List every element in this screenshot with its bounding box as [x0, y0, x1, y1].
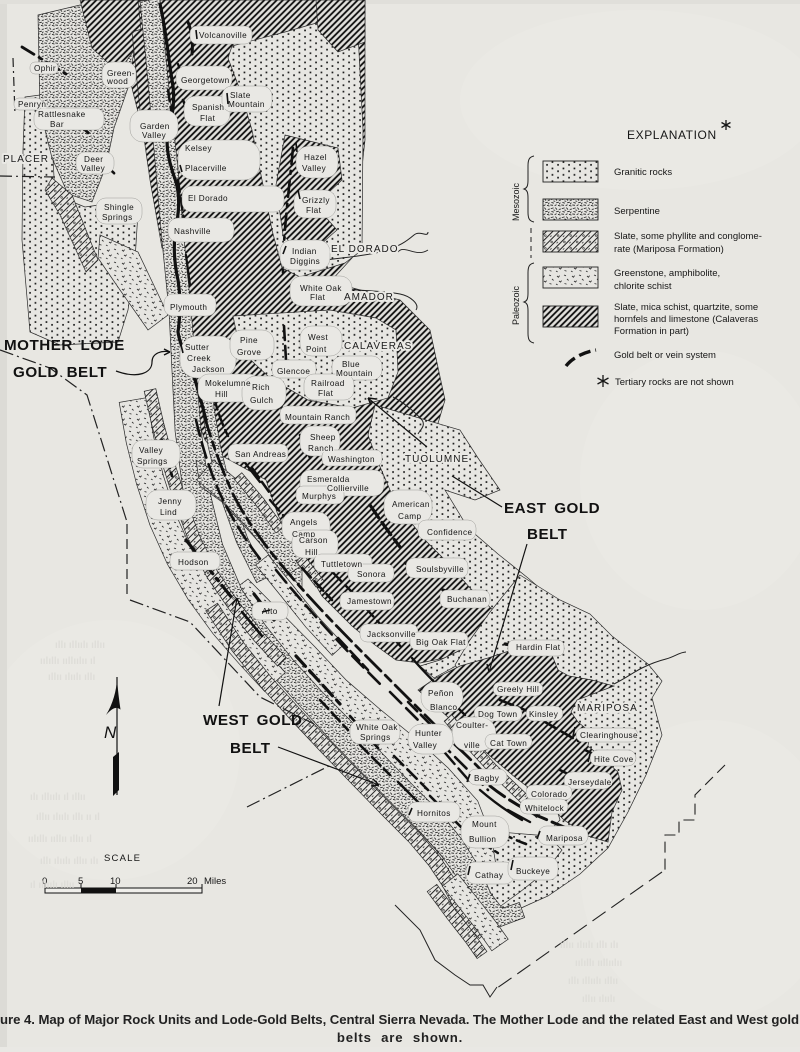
- svg-text:Hite Cove: Hite Cove: [594, 755, 634, 764]
- svg-text:Mesozoic: Mesozoic: [511, 182, 521, 221]
- svg-text:Gold belt or vein system: Gold belt or vein system: [614, 350, 716, 361]
- svg-text:20: 20: [187, 876, 198, 887]
- svg-text:Penryn: Penryn: [18, 100, 46, 109]
- svg-text:Buckeye: Buckeye: [516, 867, 550, 876]
- svg-text:Mountain: Mountain: [228, 100, 265, 109]
- svg-text:ıllı ıllıılı ıllıı: ıllı ıllıılı ıllıı: [568, 976, 618, 987]
- svg-text:Valley: Valley: [81, 164, 106, 173]
- svg-text:Slate, mica schist, quartzite,: Slate, mica schist, quartzite, some: [614, 302, 758, 313]
- svg-text:Lind: Lind: [160, 508, 177, 517]
- svg-text:Jacksonville: Jacksonville: [367, 630, 416, 639]
- svg-text:Hill: Hill: [215, 390, 228, 399]
- svg-text:Confidence: Confidence: [427, 528, 472, 537]
- svg-text:Serpentine: Serpentine: [614, 206, 660, 217]
- svg-text:Jenny: Jenny: [158, 497, 182, 506]
- svg-text:Spanish: Spanish: [192, 103, 224, 112]
- svg-text:Flat: Flat: [310, 293, 326, 302]
- svg-text:MARIPOSA: MARIPOSA: [577, 703, 638, 714]
- svg-text:Dog Town: Dog Town: [478, 710, 518, 719]
- svg-text:Slate, some phyllite and congl: Slate, some phyllite and conglome-: [614, 231, 762, 242]
- svg-text:WEST GOLD: WEST GOLD: [203, 712, 302, 729]
- svg-text:Sheep: Sheep: [310, 433, 336, 442]
- svg-text:Valley: Valley: [302, 164, 327, 173]
- svg-text:Plymouth: Plymouth: [170, 303, 207, 312]
- svg-text:Volcanoville: Volcanoville: [199, 31, 247, 40]
- svg-text:Nashville: Nashville: [174, 227, 211, 236]
- svg-text:Paleozoic: Paleozoic: [511, 285, 521, 325]
- svg-text:belts are shown.: belts are shown.: [337, 1030, 463, 1045]
- svg-text:Point: Point: [306, 345, 327, 354]
- svg-text:SCALE: SCALE: [104, 853, 141, 864]
- svg-text:Bullion: Bullion: [469, 835, 496, 844]
- svg-text:ılı ıllıılı ıl ıllıı: ılı ıllıılı ıl ıllıı: [30, 792, 86, 803]
- svg-text:ıllı ılıılı ıllıı ılı: ıllı ılıılı ıllıı ılı: [40, 856, 99, 867]
- svg-text:Kelsey: Kelsey: [185, 144, 212, 153]
- svg-text:chlorite schist: chlorite schist: [614, 281, 672, 292]
- svg-text:Mountain Ranch: Mountain Ranch: [285, 413, 350, 422]
- svg-text:Placerville: Placerville: [185, 164, 227, 173]
- svg-text:Tertiary rocks are not sho: Tertiary rocks are not shown: [615, 377, 734, 388]
- svg-text:PLACER: PLACER: [3, 154, 49, 165]
- svg-text:ıılıllı ııllıılıı ıl: ıılıllı ııllıılıı ıl: [40, 656, 96, 667]
- svg-text:Bagby: Bagby: [474, 774, 500, 783]
- svg-text:Miles: Miles: [204, 876, 226, 887]
- svg-text:Blue: Blue: [342, 360, 360, 369]
- svg-text:ıl ıllıılı ıllıı: ıl ıllıılı ıllıı: [30, 880, 75, 891]
- svg-text:White Oak: White Oak: [300, 284, 342, 293]
- svg-text:Murphys: Murphys: [302, 492, 336, 501]
- svg-text:Washington: Washington: [328, 455, 375, 464]
- svg-text:Cathay: Cathay: [475, 871, 504, 880]
- svg-text:Ranch: Ranch: [308, 444, 334, 453]
- svg-text:BELT: BELT: [230, 740, 271, 757]
- svg-text:hornfels and limestone (Calave: hornfels and limestone (Calaveras: [614, 314, 758, 325]
- svg-text:Valley: Valley: [139, 446, 164, 455]
- svg-text:Deer: Deer: [84, 155, 103, 164]
- svg-text:Cat Town: Cat Town: [490, 739, 527, 748]
- svg-text:Greely Hill: Greely Hill: [497, 685, 539, 694]
- svg-text:Grizzly: Grizzly: [302, 196, 330, 205]
- svg-text:Mountain: Mountain: [336, 369, 373, 378]
- svg-text:Diggins: Diggins: [290, 257, 320, 266]
- svg-text:Bar: Bar: [50, 120, 64, 129]
- svg-text:Railroad: Railroad: [311, 379, 345, 388]
- svg-text:Camp: Camp: [398, 512, 421, 521]
- svg-text:rate (Mariposa Formation): rate (Mariposa Formation): [614, 244, 724, 255]
- svg-text:Clearinghouse: Clearinghouse: [580, 731, 638, 740]
- svg-text:Valley: Valley: [142, 131, 167, 140]
- svg-text:Slate: Slate: [230, 91, 251, 100]
- svg-text:Flat: Flat: [318, 389, 334, 398]
- svg-text:5: 5: [78, 876, 83, 887]
- svg-text:Creek: Creek: [187, 354, 211, 363]
- svg-text:Esmeralda: Esmeralda: [307, 475, 350, 484]
- svg-text:Mount: Mount: [472, 820, 497, 829]
- svg-text:Jackson: Jackson: [192, 365, 225, 374]
- svg-text:AMADOR: AMADOR: [344, 292, 394, 303]
- svg-text:Formation in part): Formation in part): [614, 326, 689, 337]
- svg-text:10: 10: [110, 876, 121, 887]
- svg-text:Tuttletown: Tuttletown: [321, 560, 363, 569]
- svg-text:El Dorado: El Dorado: [188, 194, 228, 203]
- svg-text:Greenstone, amphibolite,: Greenstone, amphibolite,: [614, 268, 720, 279]
- svg-text:ıllıı ılıılı ıllı ıı ıl: ıllıı ılıılı ıllı ıı ıl: [36, 812, 100, 823]
- svg-text:wood: wood: [106, 77, 128, 86]
- svg-text:Hornitos: Hornitos: [417, 809, 451, 818]
- svg-text:Colorado: Colorado: [531, 790, 567, 799]
- svg-text:ıllıı ılıılı ıllı: ıllıı ılıılı ıllı: [48, 672, 95, 683]
- svg-text:West: West: [308, 333, 328, 342]
- svg-text:Kinsley: Kinsley: [529, 710, 559, 719]
- svg-text:Glencoe: Glencoe: [277, 367, 310, 376]
- svg-text:Hill: Hill: [305, 548, 318, 557]
- svg-text:Springs: Springs: [360, 733, 391, 742]
- svg-text:Springs: Springs: [102, 213, 133, 222]
- svg-text:ıllıı ılıılı ıllı ılı: ıllıı ılıılı ıllı ılı: [560, 940, 619, 951]
- svg-text:American: American: [392, 500, 430, 509]
- svg-text:ıılıllı ııllıılıı: ıılıllı ııllıılıı: [575, 958, 622, 969]
- svg-text:Mariposa: Mariposa: [546, 834, 583, 843]
- svg-text:ıllıı ılıılı: ıllıı ılıılı: [582, 994, 616, 1005]
- svg-text:Jamestown: Jamestown: [347, 597, 392, 606]
- svg-text:N: N: [104, 723, 117, 742]
- svg-text:Gulch: Gulch: [250, 396, 273, 405]
- svg-text:Hazel: Hazel: [304, 153, 327, 162]
- svg-text:ıllı ıllıılı ıllıı: ıllı ıllıılı ıllıı: [55, 640, 105, 651]
- svg-text:Big Oak Flat: Big Oak Flat: [416, 638, 466, 647]
- svg-text:Soulsbyville: Soulsbyville: [416, 565, 464, 574]
- svg-text:San Andreas: San Andreas: [235, 450, 286, 459]
- svg-text:Whitelock: Whitelock: [525, 804, 565, 813]
- svg-text:White Oak: White Oak: [356, 723, 398, 732]
- svg-text:Granitic rocks: Granitic rocks: [614, 167, 672, 178]
- svg-text:Rich: Rich: [252, 383, 270, 392]
- svg-text:GOLD BELT: GOLD BELT: [13, 364, 107, 381]
- svg-text:ıılıllı ııllıı ıllıı ıl: ıılıllı ııllıı ıllıı ıl: [28, 834, 92, 845]
- svg-text:TUOLUMNE: TUOLUMNE: [405, 454, 469, 465]
- svg-text:Carson: Carson: [299, 536, 328, 545]
- svg-text:Shingle: Shingle: [104, 203, 134, 212]
- svg-text:Mokelumne: Mokelumne: [205, 379, 251, 388]
- svg-text:Angels: Angels: [290, 518, 317, 527]
- svg-text:Pine: Pine: [240, 336, 258, 345]
- svg-text:Sutter: Sutter: [185, 343, 209, 352]
- svg-text:CALAVERAS: CALAVERAS: [344, 341, 412, 352]
- svg-text:Hodson: Hodson: [178, 558, 209, 567]
- svg-text:Indian: Indian: [292, 247, 317, 256]
- svg-text:MOTHER LODE: MOTHER LODE: [4, 337, 125, 354]
- svg-text:Grove: Grove: [237, 348, 261, 357]
- svg-text:Georgetown: Georgetown: [181, 76, 230, 85]
- svg-text:Garden: Garden: [140, 122, 170, 131]
- svg-text:Sonora: Sonora: [357, 570, 386, 579]
- svg-text:Hardin Flat: Hardin Flat: [516, 643, 561, 652]
- svg-text:BELT: BELT: [527, 526, 568, 543]
- svg-text:ville: ville: [464, 741, 480, 750]
- svg-text:Hunter: Hunter: [415, 729, 442, 738]
- svg-text:EL DORADO: EL DORADO: [331, 244, 399, 255]
- svg-text:Flat: Flat: [306, 206, 322, 215]
- svg-text:EAST GOLD: EAST GOLD: [504, 500, 600, 517]
- svg-text:Rattlesnake: Rattlesnake: [38, 110, 86, 119]
- svg-text:Coulter-: Coulter-: [456, 721, 488, 730]
- svg-text:Springs: Springs: [137, 457, 168, 466]
- svg-text:Jerseydale: Jerseydale: [568, 778, 612, 787]
- svg-text:ure 4. Map of Major Rock Unit: ure 4. Map of Major Rock Units and Lode-…: [0, 1012, 799, 1027]
- svg-text:Flat: Flat: [200, 114, 216, 123]
- svg-text:Buchanan: Buchanan: [447, 595, 487, 604]
- svg-text:Valley: Valley: [413, 741, 438, 750]
- svg-text:Ophir: Ophir: [34, 64, 56, 73]
- svg-text:Blanco: Blanco: [430, 703, 457, 712]
- svg-text:EXPLANATION: EXPLANATION: [627, 128, 717, 142]
- svg-text:Peñon: Peñon: [428, 689, 454, 698]
